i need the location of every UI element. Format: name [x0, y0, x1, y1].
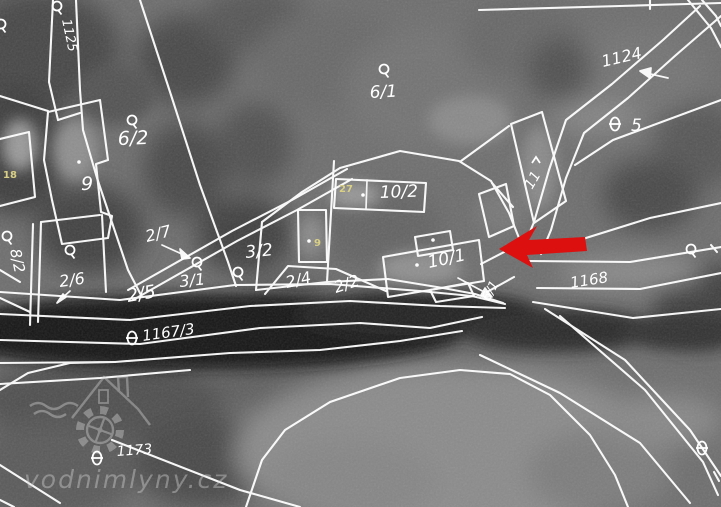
parcel-label-6-2: 6/2	[117, 127, 148, 150]
house-number-18: 18	[3, 170, 17, 181]
dot	[431, 238, 435, 242]
cadastral-overlay-map: vodnimlyny.cz 11256/296/18/22/62/52/73/1…	[0, 0, 721, 507]
house-number-27: 27	[339, 184, 353, 195]
parcel-label-3-2: 3/2	[244, 240, 273, 263]
watermark-text: vodnimlyny.cz	[24, 465, 228, 494]
map-viewport[interactable]: vodnimlyny.cz 11256/296/18/22/62/52/73/1…	[0, 0, 721, 507]
photo-grain	[0, 0, 721, 507]
parcel-label-5: 5	[631, 116, 642, 136]
dot	[361, 193, 365, 197]
parcel-label-2-6: 2/6	[58, 269, 86, 291]
dot	[307, 239, 311, 243]
parcel-label-1173: 1173	[116, 442, 153, 460]
parcel-label-3-1: 3/1	[178, 269, 206, 291]
aerial-photo-background	[0, 0, 721, 507]
parcel-label-10-2: 10/2	[379, 182, 418, 203]
dot	[415, 263, 419, 267]
house-number-9: 9	[314, 238, 321, 249]
parcel-label-9: 9	[81, 173, 93, 195]
parcel-label-6-1: 6/1	[369, 82, 397, 103]
dot	[77, 160, 81, 164]
